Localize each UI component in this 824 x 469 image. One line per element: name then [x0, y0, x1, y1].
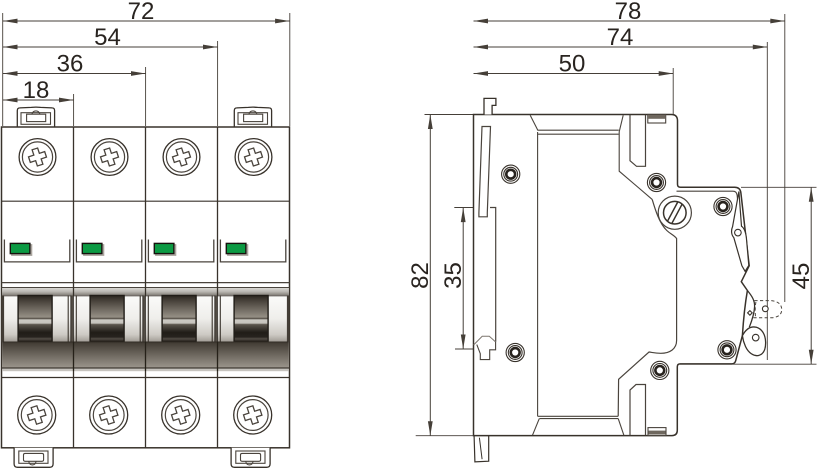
svg-text:82: 82 — [407, 262, 434, 289]
svg-text:50: 50 — [559, 51, 586, 78]
svg-text:78: 78 — [615, 0, 642, 25]
svg-text:74: 74 — [607, 24, 634, 51]
svg-text:35: 35 — [440, 262, 467, 289]
svg-text:45: 45 — [788, 263, 815, 290]
svg-text:54: 54 — [94, 24, 121, 51]
svg-text:36: 36 — [57, 51, 84, 78]
svg-text:72: 72 — [128, 0, 155, 25]
svg-text:18: 18 — [23, 77, 50, 104]
